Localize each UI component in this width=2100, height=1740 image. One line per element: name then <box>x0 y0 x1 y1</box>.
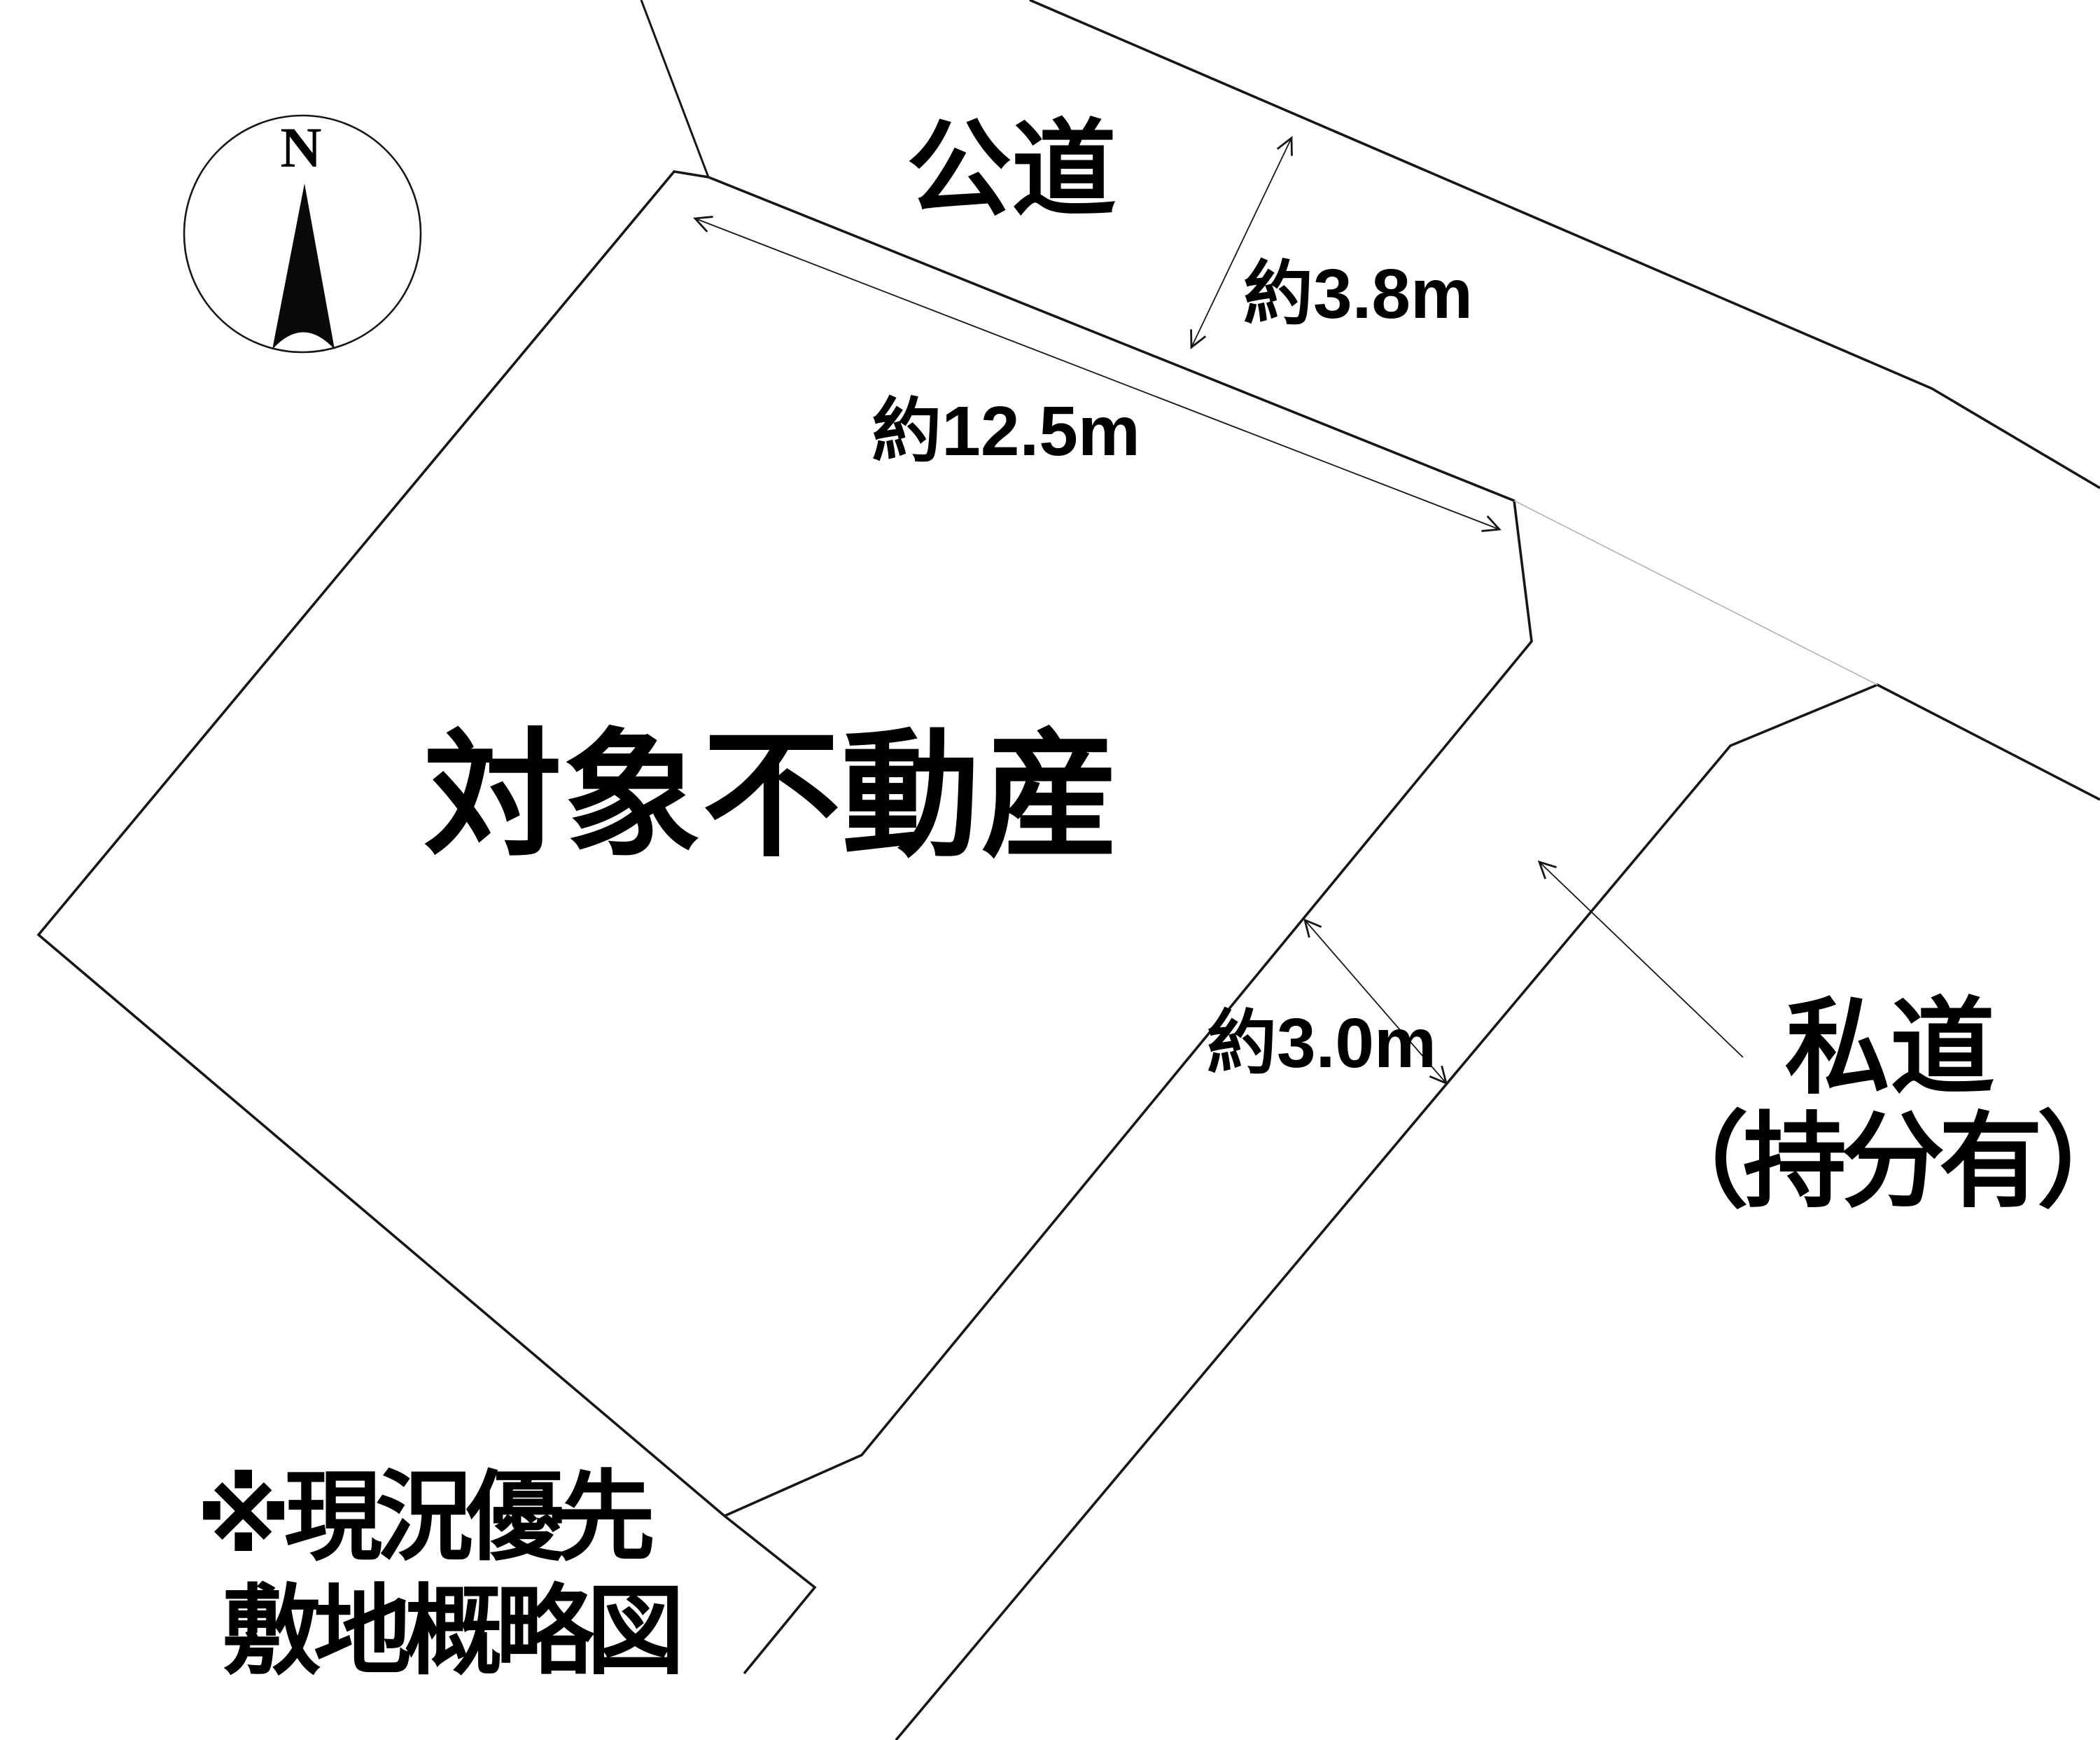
dimension-label-3-8m: 約3.8m <box>1243 259 1473 329</box>
south-boundary-jog <box>724 1516 815 1673</box>
dimension-label-12-5m: 約12.5m <box>871 396 1140 466</box>
faint-lot-line <box>1514 501 1877 685</box>
dimension-label-3-0m: 約3.0m <box>1207 1008 1436 1078</box>
private-road-pointer-arrow <box>1539 862 1743 1057</box>
private-road-label: 私道 <box>1785 995 1995 1100</box>
footnote-line2: 敷地概略図 <box>223 1582 678 1680</box>
north-boundary-line <box>641 0 708 177</box>
footnote-line1: ※現況優先 <box>196 1468 648 1566</box>
compass-needle-icon <box>272 183 335 349</box>
public-road-label: 公道 <box>906 117 1116 222</box>
compass-north-label: N <box>280 119 321 176</box>
subject-property-label: 対象不動産 <box>423 728 1120 865</box>
private-road-note: （持分有） <box>1645 1111 2100 1214</box>
